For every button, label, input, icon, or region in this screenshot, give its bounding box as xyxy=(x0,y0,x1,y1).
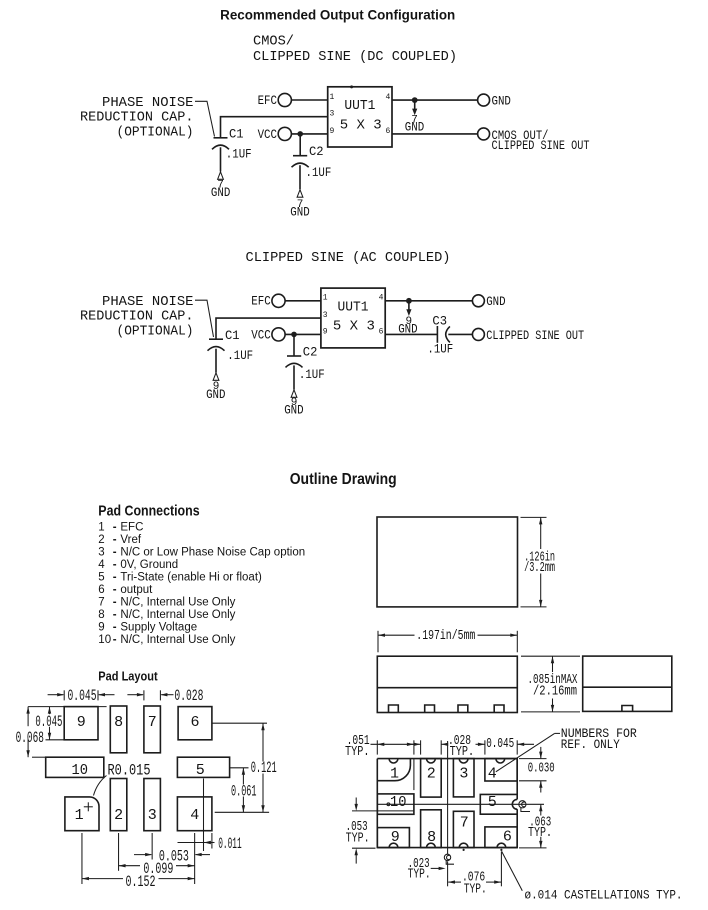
svg-text:2: 2 xyxy=(427,766,436,783)
svg-text:GND: GND xyxy=(290,205,310,220)
svg-text:-: - xyxy=(113,559,117,571)
svg-text:5 X 3: 5 X 3 xyxy=(340,117,382,133)
svg-text:TYP.: TYP. xyxy=(346,831,370,847)
svg-text:-: - xyxy=(113,621,117,633)
svg-text:UUT1: UUT1 xyxy=(338,299,369,315)
svg-text:TYP.: TYP. xyxy=(528,825,552,841)
svg-text:-: - xyxy=(113,546,117,558)
svg-text:REF. ONLY: REF. ONLY xyxy=(561,738,620,752)
svg-text:0.030: 0.030 xyxy=(528,761,555,777)
svg-text:6: 6 xyxy=(385,127,390,136)
svg-text:10: 10 xyxy=(390,794,407,811)
svg-text:0.061: 0.061 xyxy=(231,782,257,800)
svg-text:.1UF: .1UF xyxy=(299,367,325,382)
svg-text:6: 6 xyxy=(98,584,104,596)
svg-text:-: - xyxy=(113,634,117,646)
svg-text:VCC: VCC xyxy=(251,327,271,342)
svg-text:.1UF: .1UF xyxy=(227,348,253,363)
svg-text:TYP.: TYP. xyxy=(464,881,487,897)
svg-text:C2: C2 xyxy=(303,344,318,359)
svg-text:9: 9 xyxy=(323,327,328,336)
svg-text:GND: GND xyxy=(211,185,231,200)
svg-text:UUT1: UUT1 xyxy=(344,98,375,114)
svg-text:4: 4 xyxy=(379,294,384,303)
svg-text:9: 9 xyxy=(77,714,86,731)
svg-text:2: 2 xyxy=(114,807,123,824)
svg-text:.1UF: .1UF xyxy=(226,147,252,162)
svg-text:(OPTIONAL): (OPTIONAL) xyxy=(117,324,194,340)
svg-text:CLIPPED SINE OUT: CLIPPED SINE OUT xyxy=(492,138,590,153)
svg-text:EFC: EFC xyxy=(258,93,278,108)
svg-text:-: - xyxy=(113,534,117,546)
svg-text:3: 3 xyxy=(459,766,468,783)
svg-text:.1UF: .1UF xyxy=(427,342,453,357)
svg-text:6: 6 xyxy=(379,327,384,336)
svg-text:TYP.: TYP. xyxy=(345,744,370,760)
svg-text:8: 8 xyxy=(427,829,436,846)
svg-text:GND: GND xyxy=(486,294,506,309)
svg-text:0.152: 0.152 xyxy=(126,873,156,891)
svg-text:/3.2mm: /3.2mm xyxy=(524,560,555,576)
svg-text:CMOS/: CMOS/ xyxy=(253,33,294,49)
svg-text:ø.014 CASTELLATIONS TYP.: ø.014 CASTELLATIONS TYP. xyxy=(525,888,683,902)
svg-text:7: 7 xyxy=(460,815,469,832)
svg-text:output: output xyxy=(120,584,153,596)
svg-text:CLIPPED SINE OUT: CLIPPED SINE OUT xyxy=(486,328,584,343)
svg-text:EFC: EFC xyxy=(120,521,143,533)
svg-text:Supply Voltage: Supply Voltage xyxy=(120,621,197,633)
svg-text:VCC: VCC xyxy=(258,127,278,142)
svg-text:TYP.: TYP. xyxy=(408,867,431,883)
svg-text:Recommended Output Configurati: Recommended Output Configuration xyxy=(220,7,455,22)
svg-text:3: 3 xyxy=(330,110,335,119)
svg-text:4: 4 xyxy=(488,766,497,783)
svg-text:8: 8 xyxy=(114,714,123,731)
svg-text:CLIPPED SINE (DC COUPLED): CLIPPED SINE (DC COUPLED) xyxy=(253,49,457,65)
svg-text:6: 6 xyxy=(190,714,199,731)
svg-text:N/C, Internal Use Only: N/C, Internal Use Only xyxy=(120,596,235,608)
svg-text:Pad Layout: Pad Layout xyxy=(98,669,158,683)
svg-text:-: - xyxy=(113,521,117,533)
svg-text:3: 3 xyxy=(323,311,328,320)
svg-text:9: 9 xyxy=(330,127,335,136)
svg-text:C2: C2 xyxy=(309,144,324,159)
svg-text:CLIPPED SINE (AC COUPLED): CLIPPED SINE (AC COUPLED) xyxy=(246,250,451,266)
svg-text:0.028: 0.028 xyxy=(174,687,203,705)
svg-text:5: 5 xyxy=(488,794,497,811)
svg-text:Pad Connections: Pad Connections xyxy=(98,503,199,520)
svg-text:1: 1 xyxy=(330,93,335,102)
svg-text:EFC: EFC xyxy=(251,294,271,309)
svg-text:9: 9 xyxy=(391,829,400,846)
svg-text:GND: GND xyxy=(492,93,512,108)
svg-text:REDUCTION CAP.: REDUCTION CAP. xyxy=(80,308,194,324)
svg-text:(OPTIONAL): (OPTIONAL) xyxy=(117,125,194,141)
svg-text:6: 6 xyxy=(503,829,512,846)
svg-text:-: - xyxy=(113,584,117,596)
svg-text:C3: C3 xyxy=(432,314,447,329)
svg-text:1: 1 xyxy=(390,766,399,783)
svg-text:9: 9 xyxy=(98,621,104,633)
svg-text:C1: C1 xyxy=(225,328,240,343)
svg-text:REDUCTION CAP.: REDUCTION CAP. xyxy=(80,110,194,126)
svg-text:0.045: 0.045 xyxy=(486,736,514,752)
svg-text:Outline Drawing: Outline Drawing xyxy=(290,471,397,488)
svg-text:7: 7 xyxy=(98,596,104,608)
svg-text:GND: GND xyxy=(206,387,226,402)
svg-text:4: 4 xyxy=(190,807,199,824)
svg-text:Tri-State (enable Hi or float): Tri-State (enable Hi or float) xyxy=(120,571,262,583)
svg-text:1: 1 xyxy=(75,807,84,824)
svg-text:Vref: Vref xyxy=(120,534,141,546)
svg-text:GND: GND xyxy=(405,120,425,135)
svg-text:/2.16mm: /2.16mm xyxy=(533,683,577,699)
svg-text:C1: C1 xyxy=(229,126,244,141)
svg-text:5: 5 xyxy=(98,571,104,583)
svg-text:R0.015: R0.015 xyxy=(108,762,151,780)
svg-text:-: - xyxy=(113,571,117,583)
svg-text:1: 1 xyxy=(98,521,104,533)
svg-text:-: - xyxy=(113,609,117,621)
svg-text:4: 4 xyxy=(98,559,105,571)
svg-text:3: 3 xyxy=(148,807,157,824)
svg-text:7: 7 xyxy=(148,714,157,731)
svg-text:2: 2 xyxy=(98,534,104,546)
svg-text:.1UF: .1UF xyxy=(306,165,332,180)
svg-text:1: 1 xyxy=(323,294,328,303)
svg-text:10: 10 xyxy=(98,634,111,646)
svg-text:-: - xyxy=(113,596,117,608)
svg-text:0.045: 0.045 xyxy=(68,687,97,705)
svg-text:4: 4 xyxy=(385,93,390,102)
svg-text:3: 3 xyxy=(98,546,104,558)
svg-text:N/C, Internal Use Only: N/C, Internal Use Only xyxy=(120,634,235,646)
svg-text:5 X 3: 5 X 3 xyxy=(333,319,375,335)
svg-text:N/C or Low Phase Noise Cap opt: N/C or Low Phase Noise Cap option xyxy=(120,546,305,558)
svg-text:TYP.: TYP. xyxy=(450,744,475,760)
svg-text:0.068: 0.068 xyxy=(16,729,44,747)
svg-text:0.121: 0.121 xyxy=(251,759,277,777)
svg-text:N/C, Internal Use Only: N/C, Internal Use Only xyxy=(120,609,235,621)
svg-text:0.011: 0.011 xyxy=(218,835,242,853)
svg-text:5: 5 xyxy=(196,762,205,779)
svg-text:10: 10 xyxy=(72,762,89,779)
svg-text:.197in/5mm: .197in/5mm xyxy=(416,628,475,644)
svg-text:8: 8 xyxy=(98,609,104,621)
svg-text:GND: GND xyxy=(284,403,304,418)
svg-text:0V, Ground: 0V, Ground xyxy=(120,559,178,571)
